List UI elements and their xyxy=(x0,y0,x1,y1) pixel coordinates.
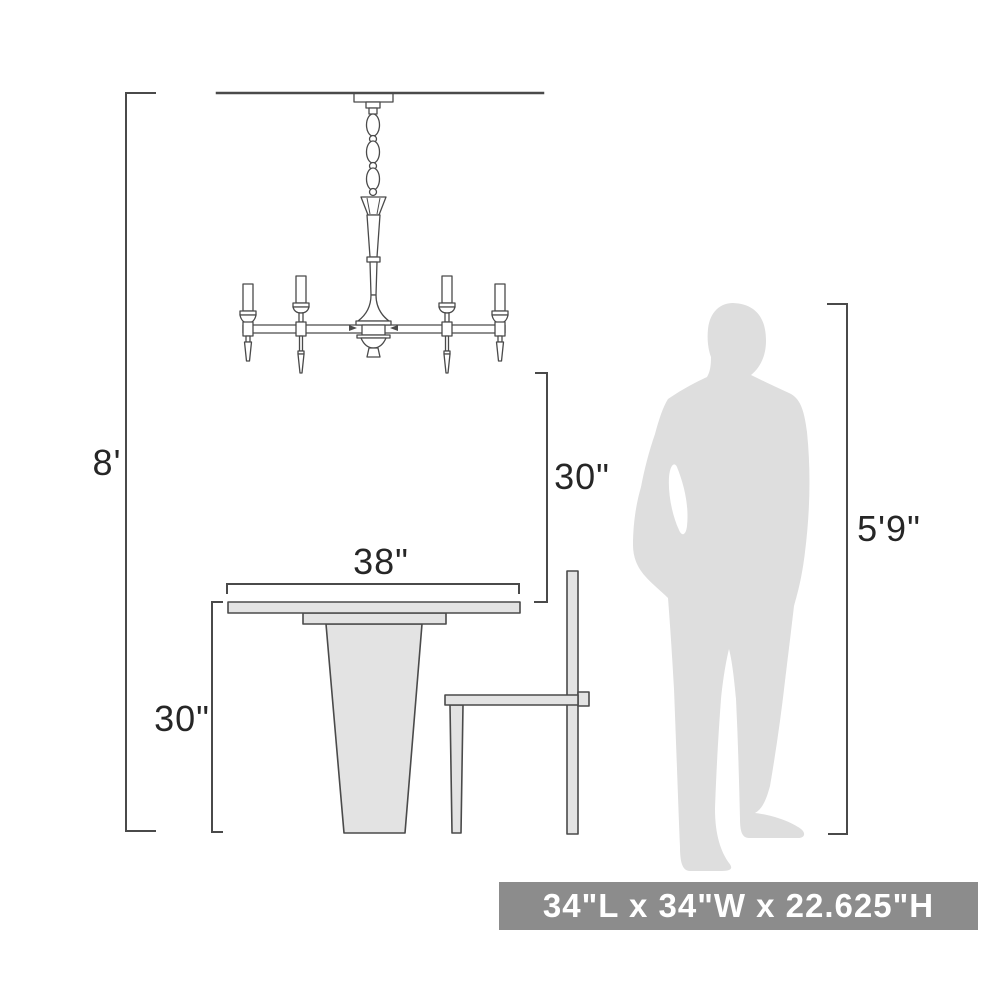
table-pedestal xyxy=(326,624,422,833)
dimension-line-table-height xyxy=(212,602,222,832)
dining-table xyxy=(228,602,520,833)
candle-outer-right xyxy=(492,284,508,361)
product-size-text: 34"L x 34"W x 22.625"H xyxy=(543,887,934,925)
chandelier-drawing xyxy=(240,93,508,373)
chair-rear-rail xyxy=(578,692,589,706)
person-silhouette xyxy=(633,303,809,871)
product-size-banner: 34"L x 34"W x 22.625"H xyxy=(499,882,978,930)
label-person-height: 5'9" xyxy=(857,511,921,547)
dimension-line-table-width xyxy=(227,584,519,593)
table-top xyxy=(228,602,520,613)
chair-seat xyxy=(445,695,578,705)
label-hang-clearance: 30" xyxy=(554,459,610,495)
dimension-diagram: 8' 30" 38" 30" 5'9" 34"L x 34"W x 22.625… xyxy=(0,0,1000,1000)
candle-outer-left xyxy=(240,284,256,361)
center-column xyxy=(358,197,389,321)
label-ceiling-height: 8' xyxy=(93,445,122,481)
chain xyxy=(367,114,380,196)
diagram-canvas xyxy=(0,0,1000,1000)
dimension-line-ceiling-height xyxy=(126,93,155,831)
table-apron xyxy=(303,613,446,624)
chair-front-leg xyxy=(450,705,463,833)
candle-inner-left xyxy=(293,276,309,373)
label-table-height: 30" xyxy=(154,701,210,737)
candle-inner-right xyxy=(439,276,455,373)
canopy xyxy=(354,93,393,102)
label-table-width: 38" xyxy=(353,544,409,580)
dimension-line-hang-clearance xyxy=(535,373,547,602)
dimension-line-person-height xyxy=(828,304,847,834)
